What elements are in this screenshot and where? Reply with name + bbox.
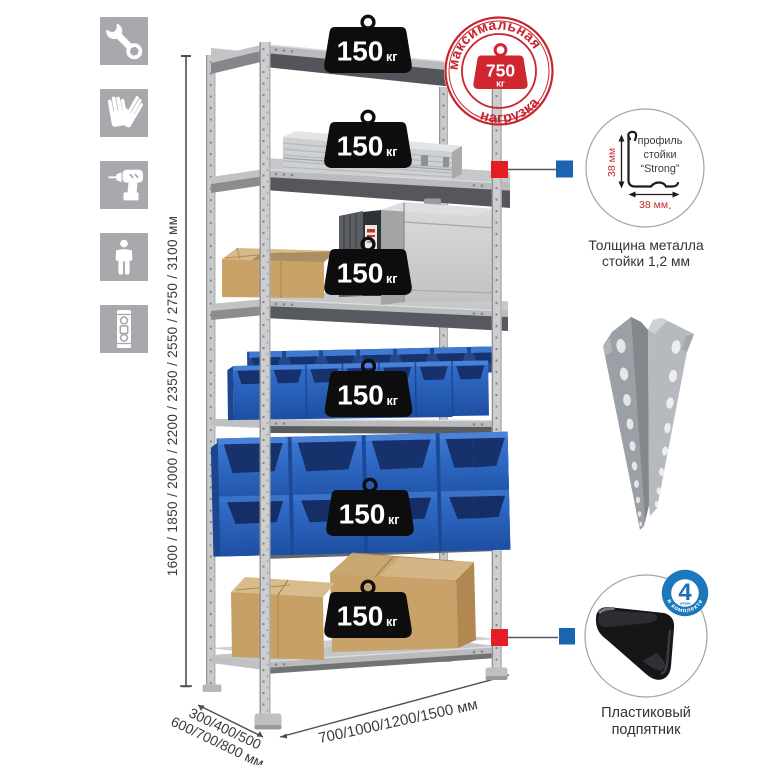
svg-text:Пластиковый: Пластиковый [601,705,691,721]
svg-text:штуки: штуки [680,602,691,606]
svg-text:стойки 1,2 мм: стойки 1,2 мм [602,254,690,269]
svg-text:Толщина металла: Толщина металла [588,238,704,253]
svg-text:“Strong”: “Strong” [640,163,679,175]
svg-text:подпятник: подпятник [612,722,682,738]
svg-text:стойки: стойки [643,149,676,161]
svg-text:38 мм: 38 мм [606,148,618,177]
svg-text:1600 / 1850 / 2000 / 2200 / 23: 1600 / 1850 / 2000 / 2200 / 2350 / 2550 … [165,216,180,577]
svg-text:38 мм.: 38 мм. [639,197,672,212]
svg-text:кг: кг [496,79,505,90]
svg-text:750: 750 [486,61,515,81]
svg-text:профиль: профиль [638,135,683,147]
